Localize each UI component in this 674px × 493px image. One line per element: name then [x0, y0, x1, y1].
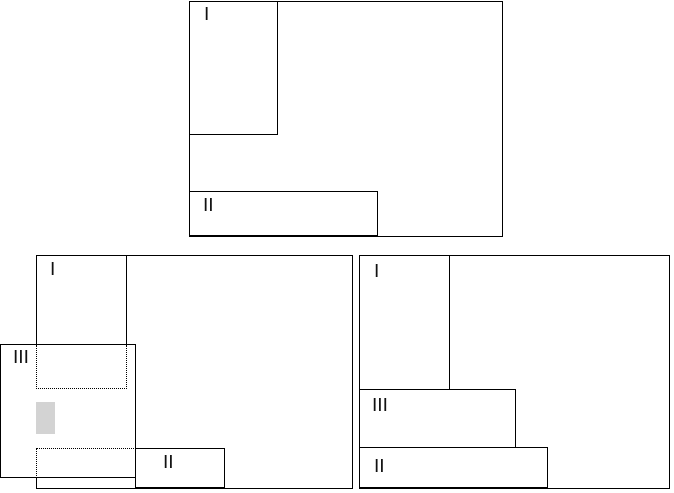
gray-highlight-block — [36, 402, 55, 434]
region-ii-label: II — [203, 195, 214, 216]
region-i-rect: I — [359, 255, 450, 390]
region-i-rect: I — [189, 1, 278, 135]
region-ii-label: II — [374, 456, 385, 477]
region-ii-rect: II — [359, 447, 548, 488]
region-ii-rect: II — [189, 191, 378, 236]
dotted-outline-upper — [36, 345, 127, 389]
region-iii-label: III — [372, 395, 388, 416]
region-ii-label: II — [163, 452, 174, 473]
region-i-rect: I — [36, 255, 127, 345]
region-i-label: I — [204, 4, 209, 25]
region-i-label: I — [50, 259, 55, 280]
figure-canvas: I II I III II I III II — [0, 0, 674, 493]
region-ii-rect: II — [135, 448, 225, 488]
dotted-outline-lower — [36, 448, 136, 478]
region-i-label: I — [374, 261, 379, 282]
region-iii-rect: III — [359, 389, 516, 448]
region-iii-label: III — [13, 347, 29, 368]
